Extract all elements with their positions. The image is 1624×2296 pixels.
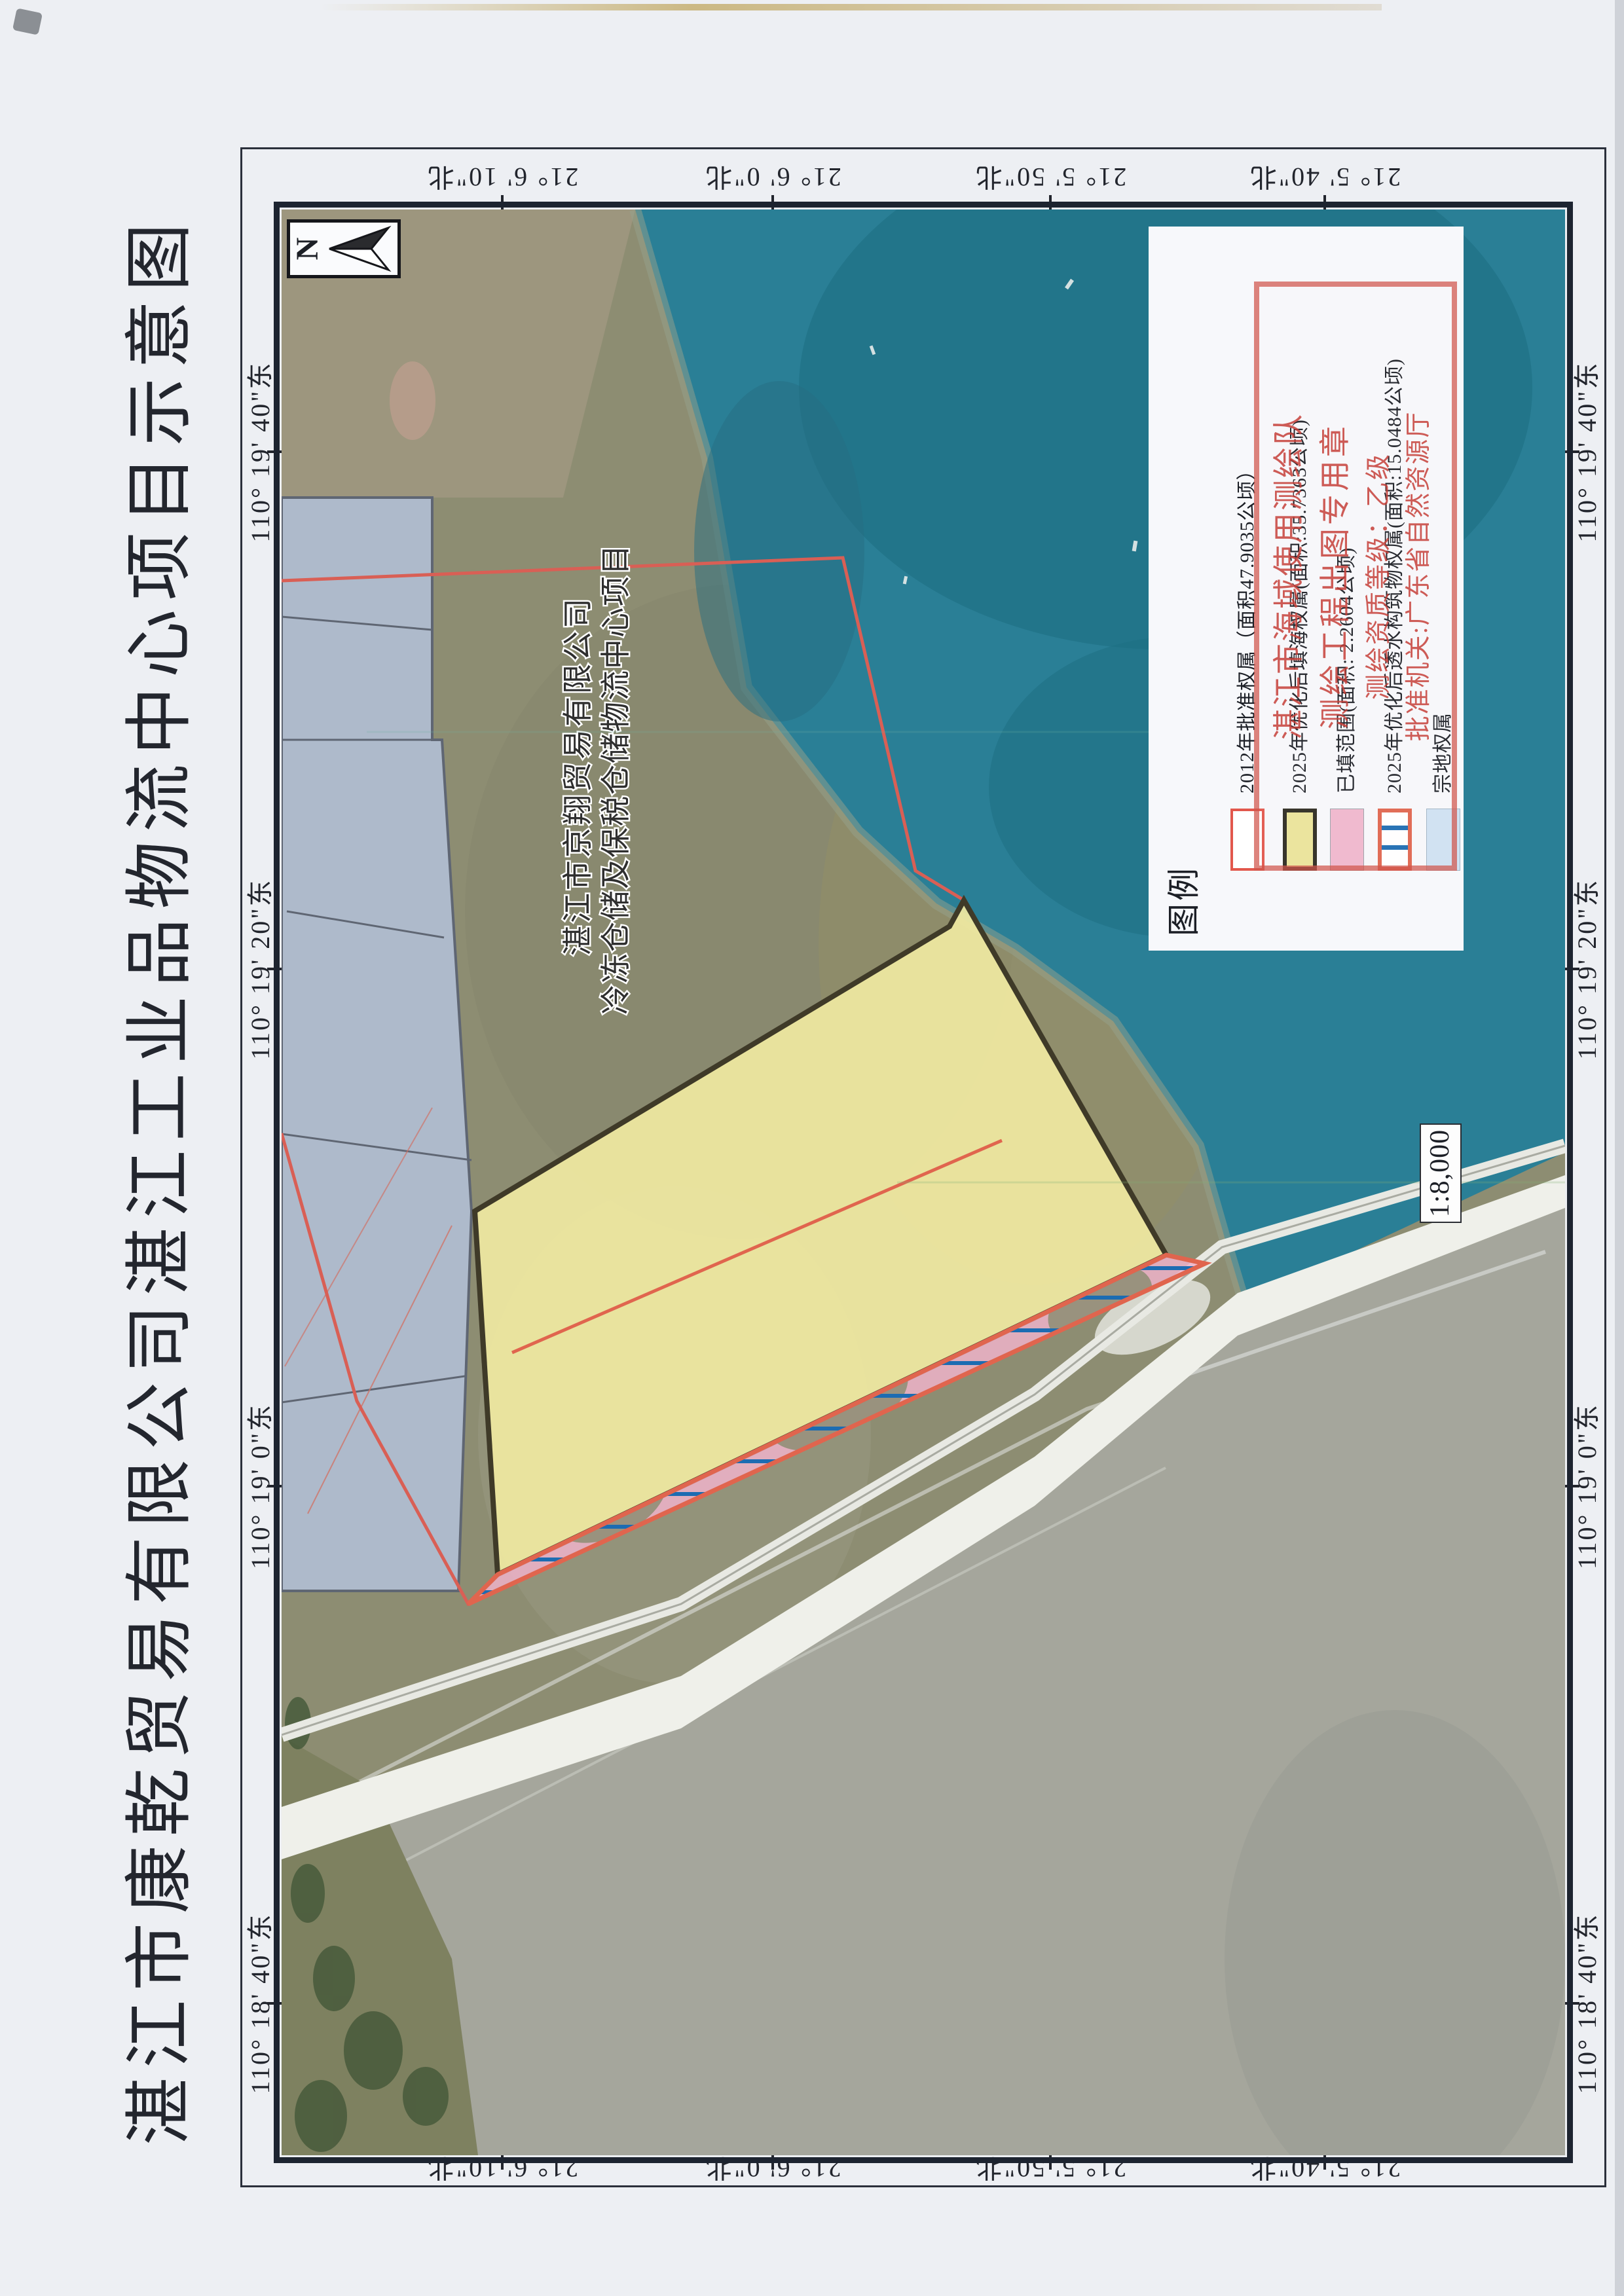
stamp-line-1: 湛江市海域使用测绘队 [1266,287,1313,866]
scale-text: 1:8,000 [1425,1129,1455,1217]
page-title: 湛江市康乾贸易有限公司湛江工业品物流中心项目示意图 [103,365,202,2145]
stamp-line-4: 批准机关:广东省自然资源厅 [1399,287,1439,866]
scale-box: 1:8,000 [1420,1123,1462,1223]
stamp-line-3: 测绘资质等级：乙级 [1359,287,1399,866]
legend-title: 图例 [1158,866,1205,936]
north-label: N [290,223,325,275]
north-arrow: N [287,219,401,278]
scan-streak [321,4,1382,10]
north-arrow-icon [325,223,394,275]
survey-stamp: 湛江市海域使用测绘队 测绘工程出图专用章 测绘资质等级：乙级 批准机关:广东省自… [1254,282,1457,871]
rotated-landscape-content: 湛江市康乾贸易有限公司湛江工业品物流中心项目示意图 [0,0,1624,2296]
lat-label-right-260: 21° 6' 0"北 [704,160,841,198]
lat-label-right-2610: 21° 6' 10"北 [426,160,579,198]
lat-label-right-2550: 21° 5' 50"北 [974,160,1127,198]
scan-edge-shade [1615,0,1624,2296]
stamp-line-2: 测绘工程出图专用章 [1313,287,1359,866]
lat-label-right-2540: 21° 5' 40"北 [1249,160,1401,198]
scanned-map-sheet: 湛江市康乾贸易有限公司湛江工业品物流中心项目示意图 [0,0,1624,2296]
